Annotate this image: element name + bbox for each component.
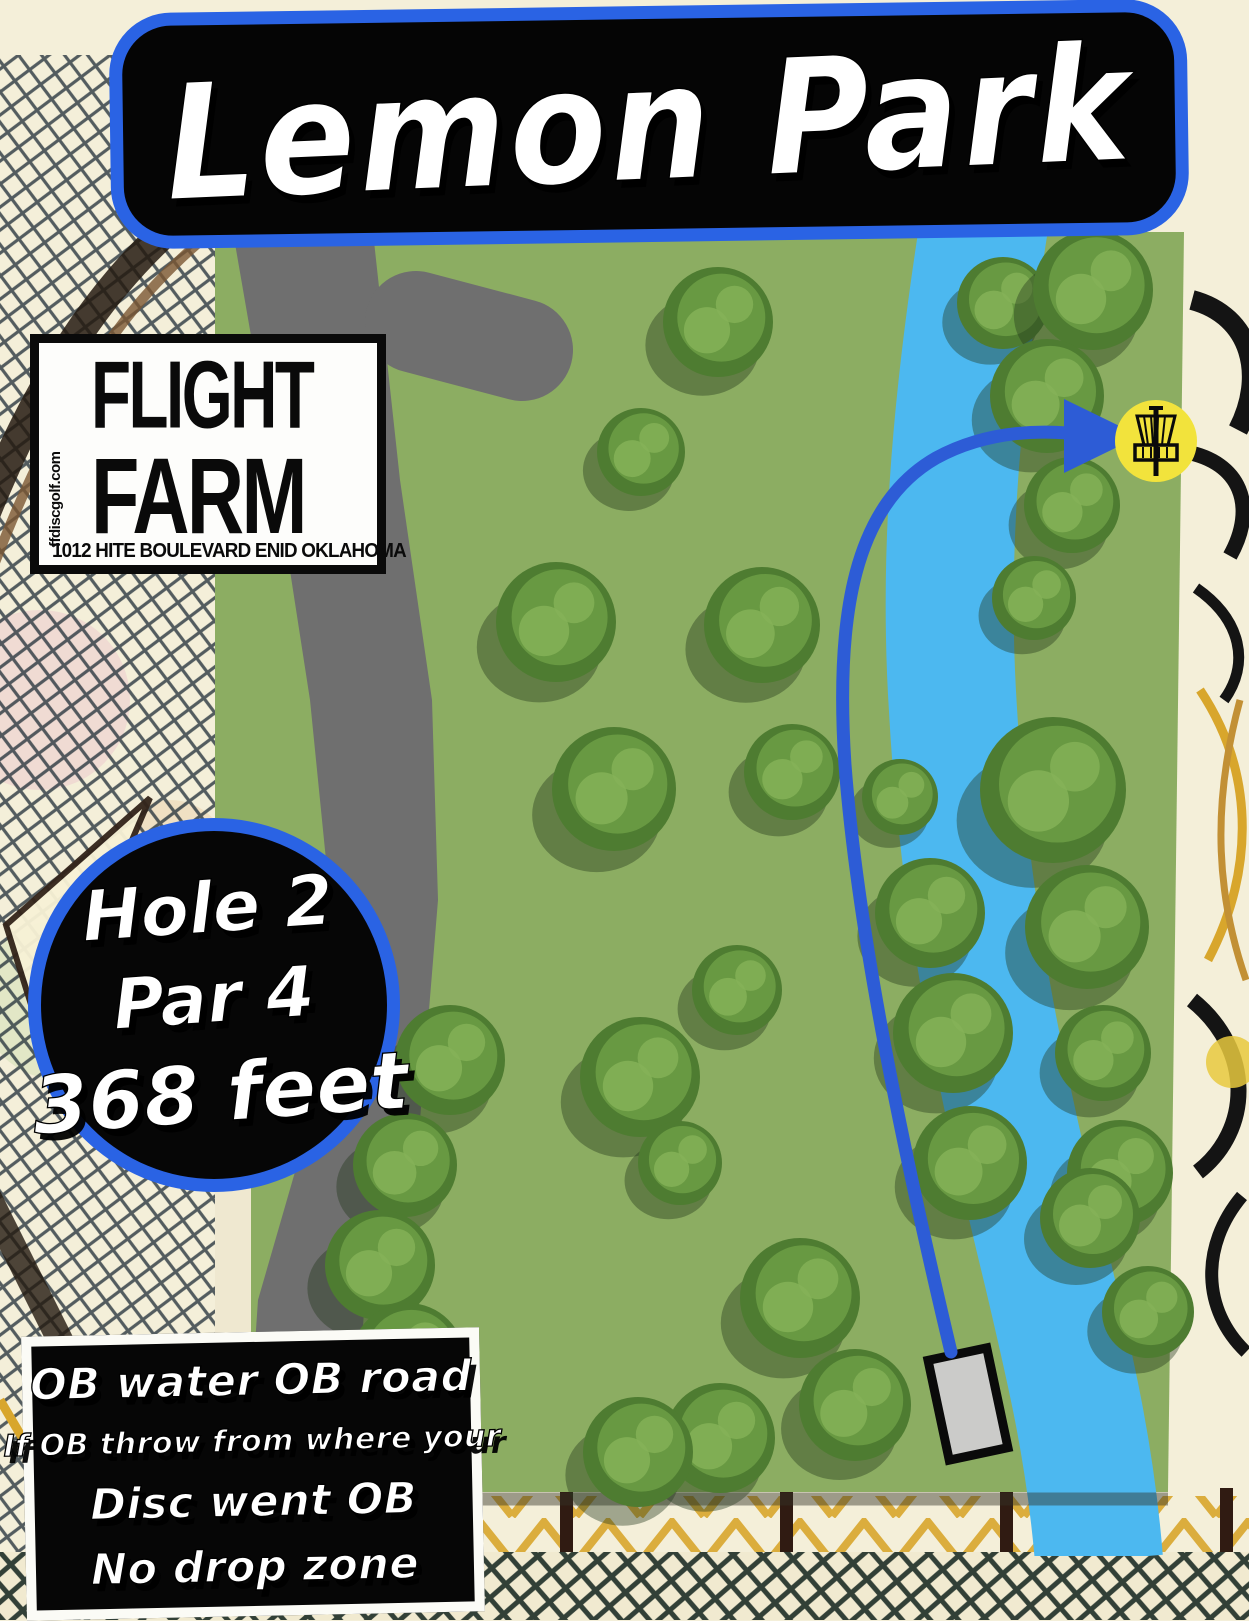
rules-line-2: If OB throw from where your [3, 1408, 502, 1475]
logo-address: 1012 HITE BOULEVARD ENID OKLAHOMA [52, 540, 364, 563]
hole-info-text: Hole 2 Par 4 368 feet [16, 851, 411, 1158]
rules-line-3: Disc went OB [90, 1467, 418, 1538]
basket [1115, 400, 1197, 482]
park-title: Lemon Park [162, 11, 1136, 237]
rules-line-1: OB water OB road [30, 1344, 473, 1418]
title-banner: Lemon Park [108, 0, 1189, 250]
rules-box: OB water OB road If OB throw from where … [21, 1327, 485, 1621]
logo-name-line2: FARM [91, 443, 305, 551]
logo-website-vertical: ffdiscgolf.com [47, 349, 64, 547]
road-branch [416, 322, 522, 350]
logo-name-line1: FLIGHT [91, 347, 312, 442]
flight-farm-logo: ffdiscgolf.com FLIGHT FARM 1012 HITE BOU… [30, 334, 386, 574]
rules-line-4: No drop zone [90, 1531, 419, 1602]
hole-info-badge: Hole 2 Par 4 368 feet [28, 818, 400, 1192]
